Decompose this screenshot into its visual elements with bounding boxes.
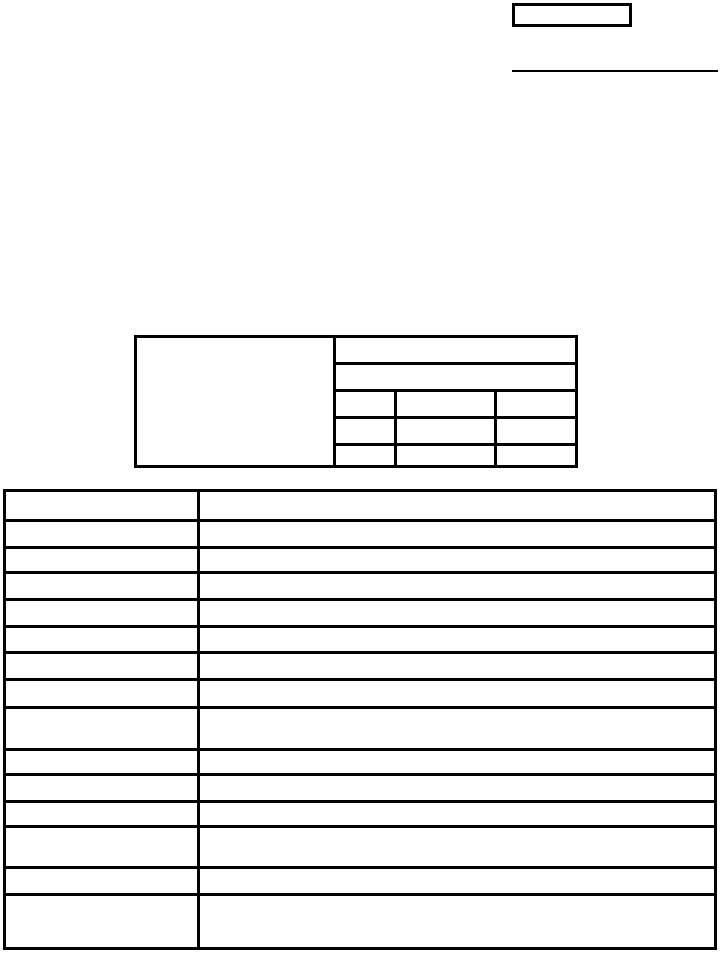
info-row-1	[336, 338, 575, 365]
corner-box	[512, 3, 632, 27]
table-row	[6, 574, 714, 601]
row-label-cell	[6, 828, 200, 866]
info-grid-cell	[497, 392, 575, 416]
info-row-2	[336, 365, 575, 392]
table-row	[6, 601, 714, 628]
info-table-right-panel	[336, 338, 575, 465]
info-grid-row	[336, 392, 575, 419]
row-label-cell	[6, 681, 200, 706]
row-value-cell	[200, 803, 714, 825]
table-row	[6, 628, 714, 654]
row-label-cell	[6, 628, 200, 651]
info-grid-cell	[397, 446, 497, 465]
info-grid-cell	[397, 419, 497, 443]
row-label-cell	[6, 522, 200, 546]
row-value-cell	[200, 869, 714, 893]
row-value-cell	[200, 896, 714, 947]
info-row-2-value	[336, 365, 575, 389]
row-value-cell	[200, 601, 714, 625]
info-grid-cell	[336, 419, 397, 443]
info-grid-cell	[497, 446, 575, 465]
row-value-cell	[200, 776, 714, 800]
row-value-cell	[200, 654, 714, 678]
underline-rule	[512, 70, 718, 72]
row-label-cell	[6, 654, 200, 678]
info-table-left-panel	[137, 338, 336, 465]
info-grid-cell	[397, 392, 497, 416]
table-row	[6, 803, 714, 828]
row-label-cell	[6, 896, 200, 947]
table-row	[6, 549, 714, 574]
table-row	[6, 828, 714, 869]
row-label-cell	[6, 709, 200, 748]
table-row	[6, 522, 714, 549]
row-value-cell	[200, 828, 714, 866]
row-label-cell	[6, 751, 200, 773]
info-left-value	[137, 338, 333, 465]
table-row	[6, 681, 714, 709]
row-value-cell	[200, 492, 714, 519]
info-grid-cell	[497, 419, 575, 443]
table-row	[6, 869, 714, 896]
row-label-cell	[6, 574, 200, 598]
row-label-cell	[6, 492, 200, 519]
row-label-cell	[6, 549, 200, 571]
corner-box-value	[515, 6, 629, 24]
table-row	[6, 776, 714, 803]
table-row	[6, 492, 714, 522]
info-row-1-value	[336, 338, 575, 362]
row-value-cell	[200, 628, 714, 651]
table-row	[6, 709, 714, 751]
row-value-cell	[200, 574, 714, 598]
info-grid-cell	[336, 392, 397, 416]
row-label-cell	[6, 869, 200, 893]
row-label-cell	[6, 776, 200, 800]
main-table	[3, 489, 717, 950]
row-value-cell	[200, 549, 714, 571]
row-value-cell	[200, 522, 714, 546]
row-label-cell	[6, 601, 200, 625]
row-value-cell	[200, 681, 714, 706]
info-grid-row	[336, 419, 575, 446]
row-label-cell	[6, 803, 200, 825]
info-table	[134, 335, 578, 468]
info-grid-row	[336, 446, 575, 465]
table-row	[6, 896, 714, 947]
row-value-cell	[200, 751, 714, 773]
table-row	[6, 654, 714, 681]
table-row	[6, 751, 714, 776]
info-grid-cell	[336, 446, 397, 465]
blank-form-page: { "page": { "background_color": "#ffffff…	[0, 0, 720, 953]
row-value-cell	[200, 709, 714, 748]
